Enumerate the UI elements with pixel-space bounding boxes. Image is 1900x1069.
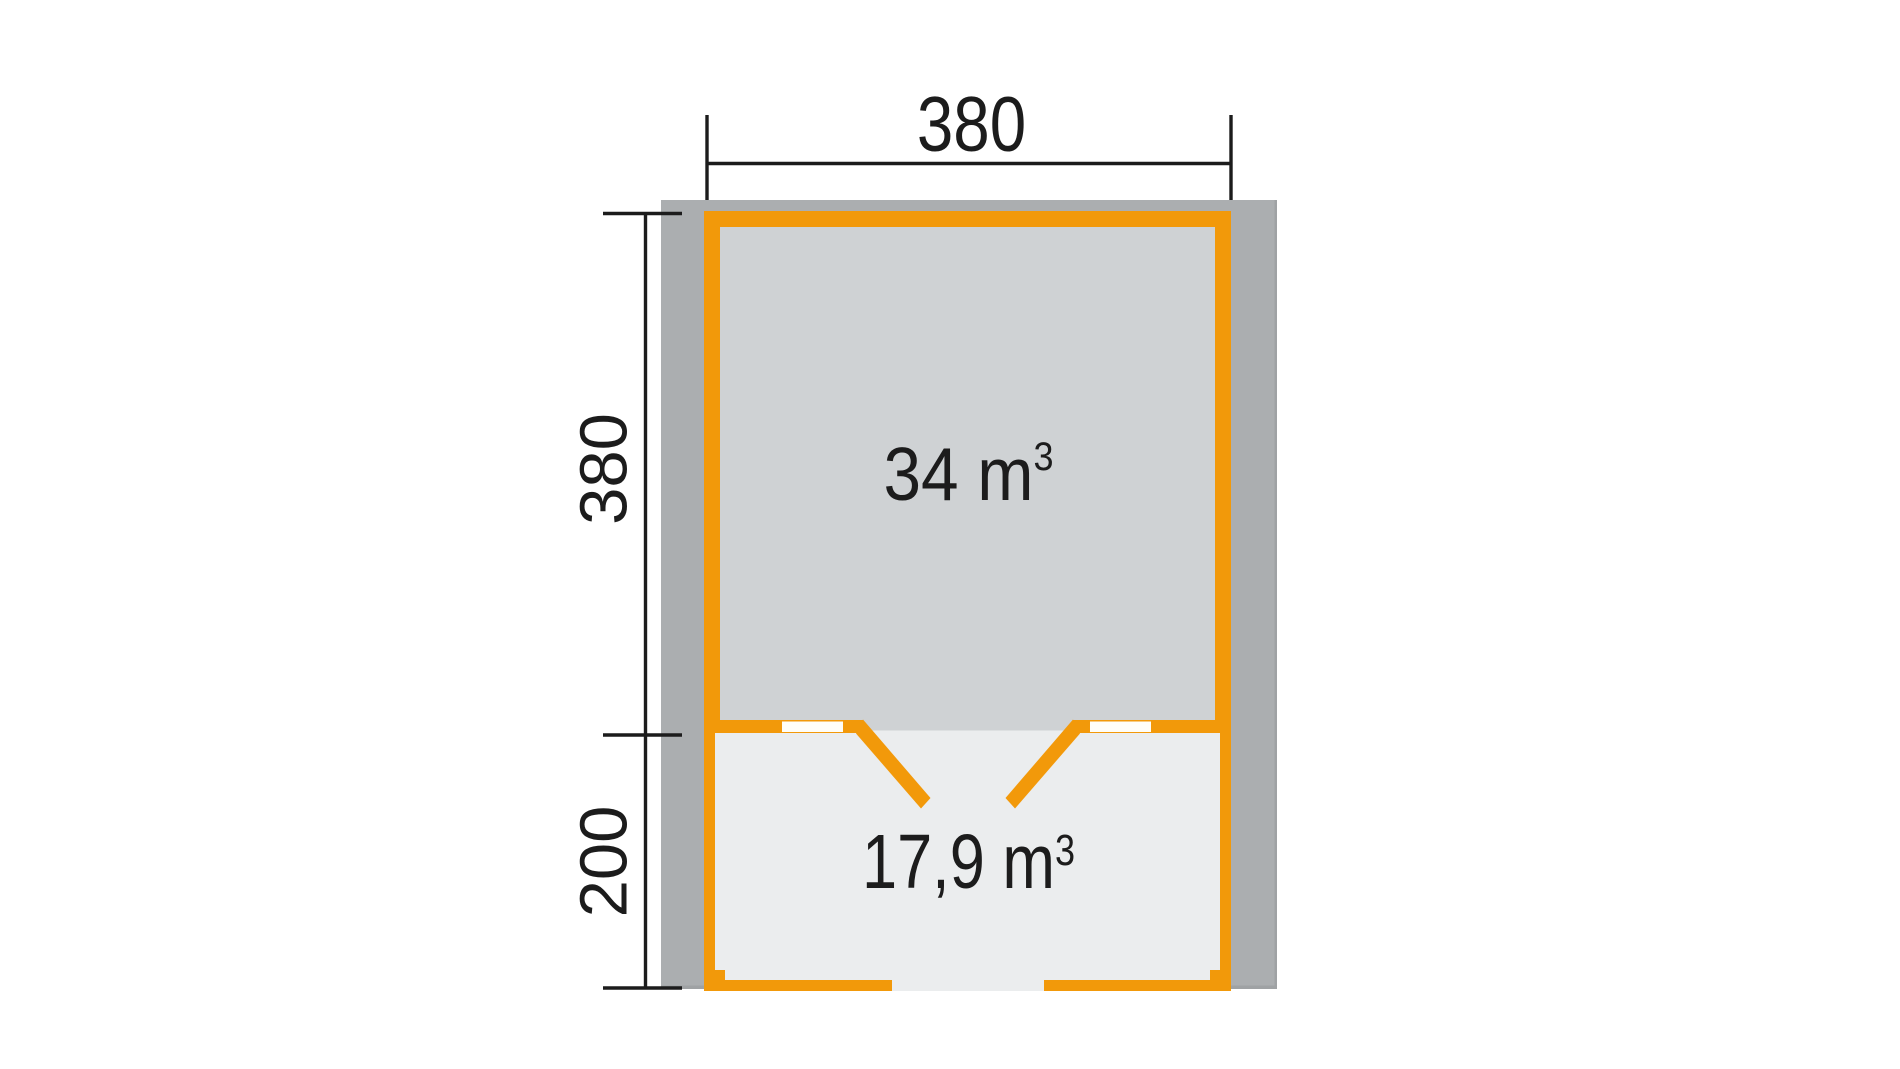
svg-text:380: 380 <box>917 81 1026 168</box>
svg-text:17,9 m3: 17,9 m3 <box>862 818 1075 904</box>
svg-text:200: 200 <box>567 806 642 918</box>
svg-text:380: 380 <box>567 413 642 525</box>
svg-text:34 m3: 34 m3 <box>883 433 1053 517</box>
